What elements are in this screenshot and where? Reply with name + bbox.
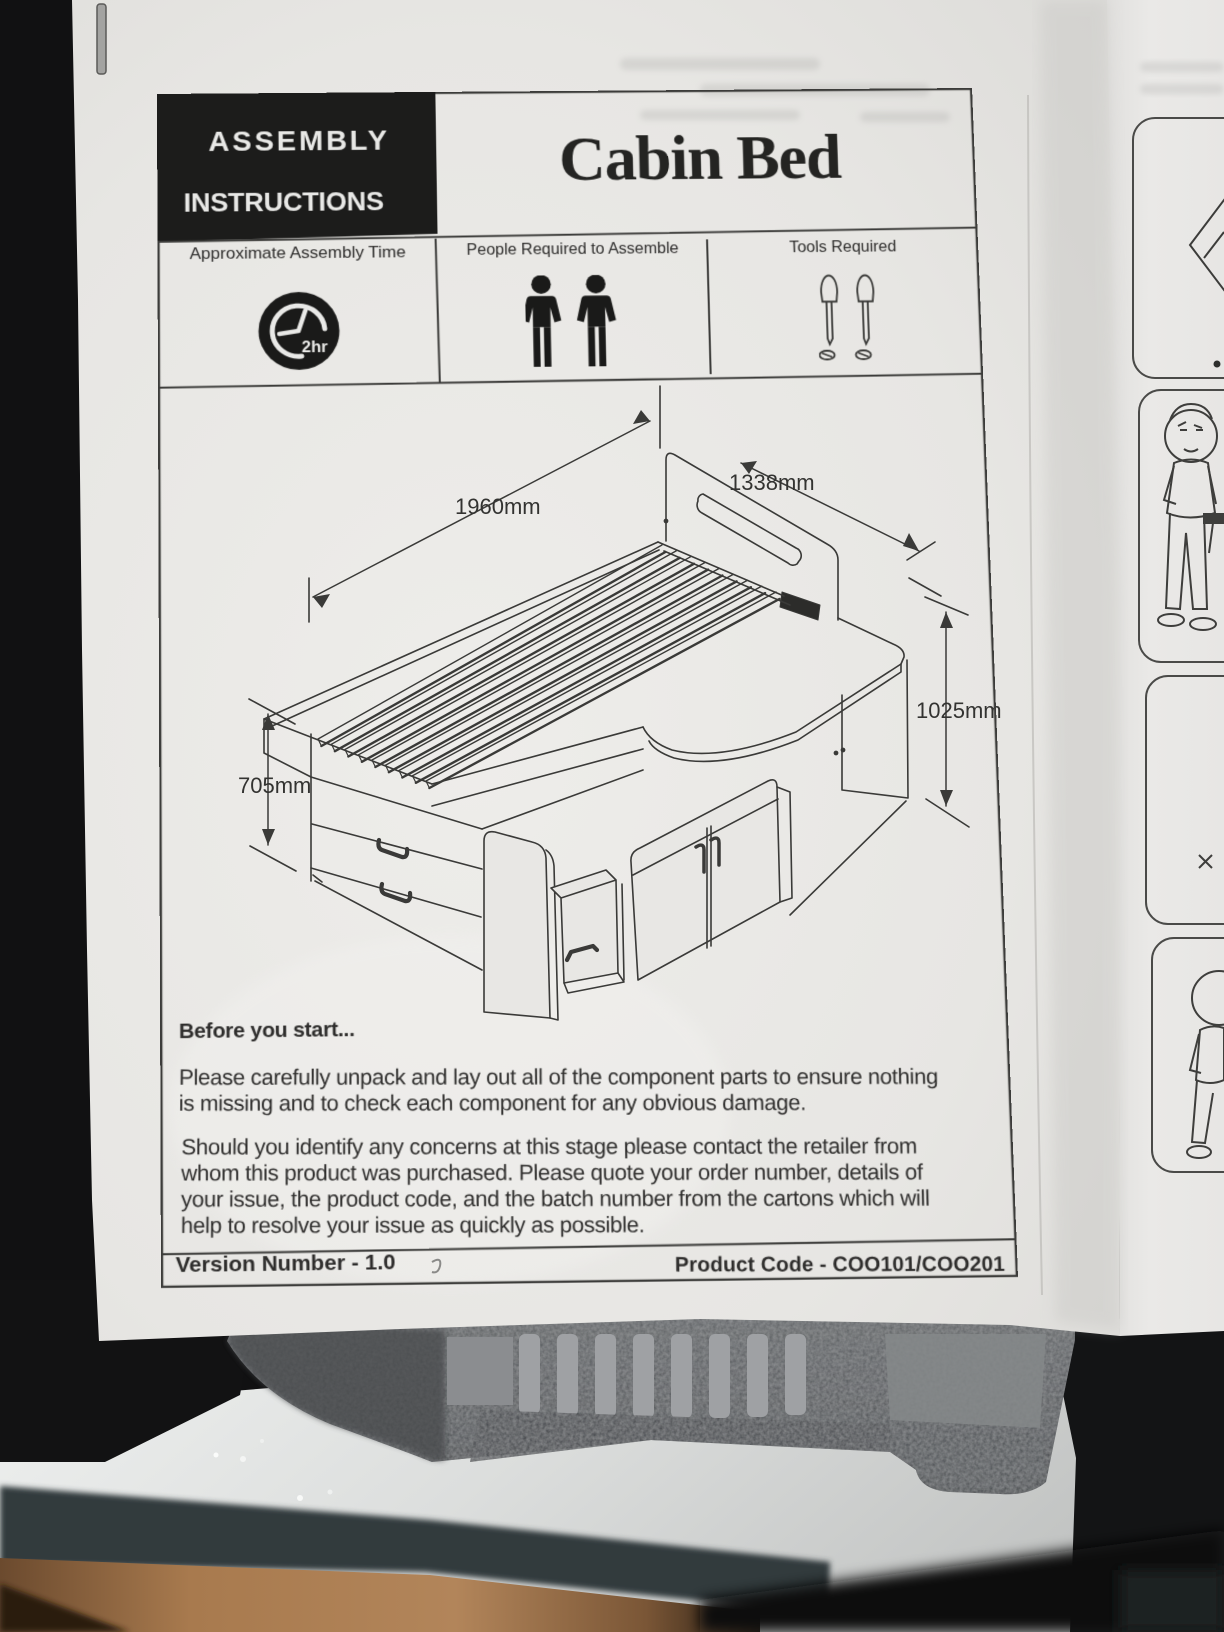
svg-text:2hr: 2hr [302, 338, 329, 356]
